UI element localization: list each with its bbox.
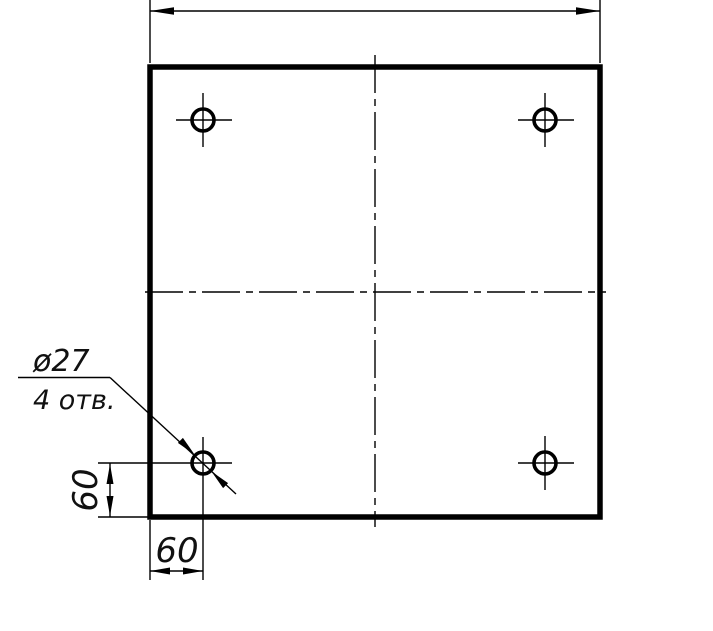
hole-diameter-label: ø27 <box>32 344 90 379</box>
dimension-value: 60 <box>155 531 198 571</box>
hole-bottom-right <box>518 436 574 490</box>
arrowhead-left <box>150 7 174 15</box>
dimension-value: 60 <box>66 468 106 511</box>
arrowhead-up <box>107 464 114 484</box>
leader-arrowhead-upper <box>178 438 195 455</box>
hole-count-label: 4 отв. <box>33 385 116 416</box>
hole-top-right <box>518 93 574 147</box>
overall-width-dimension <box>150 0 600 63</box>
leader-arrowhead-lower <box>212 472 229 489</box>
dimension-vertical-offset: 60 <box>66 463 150 517</box>
engineering-drawing-canvas: ø27 4 отв. 60 60 <box>0 0 713 631</box>
arrowhead-down <box>107 496 114 516</box>
dimension-horizontal-offset: 60 <box>150 520 203 580</box>
arrowhead-right <box>576 7 600 15</box>
hole-top-left <box>176 93 232 147</box>
